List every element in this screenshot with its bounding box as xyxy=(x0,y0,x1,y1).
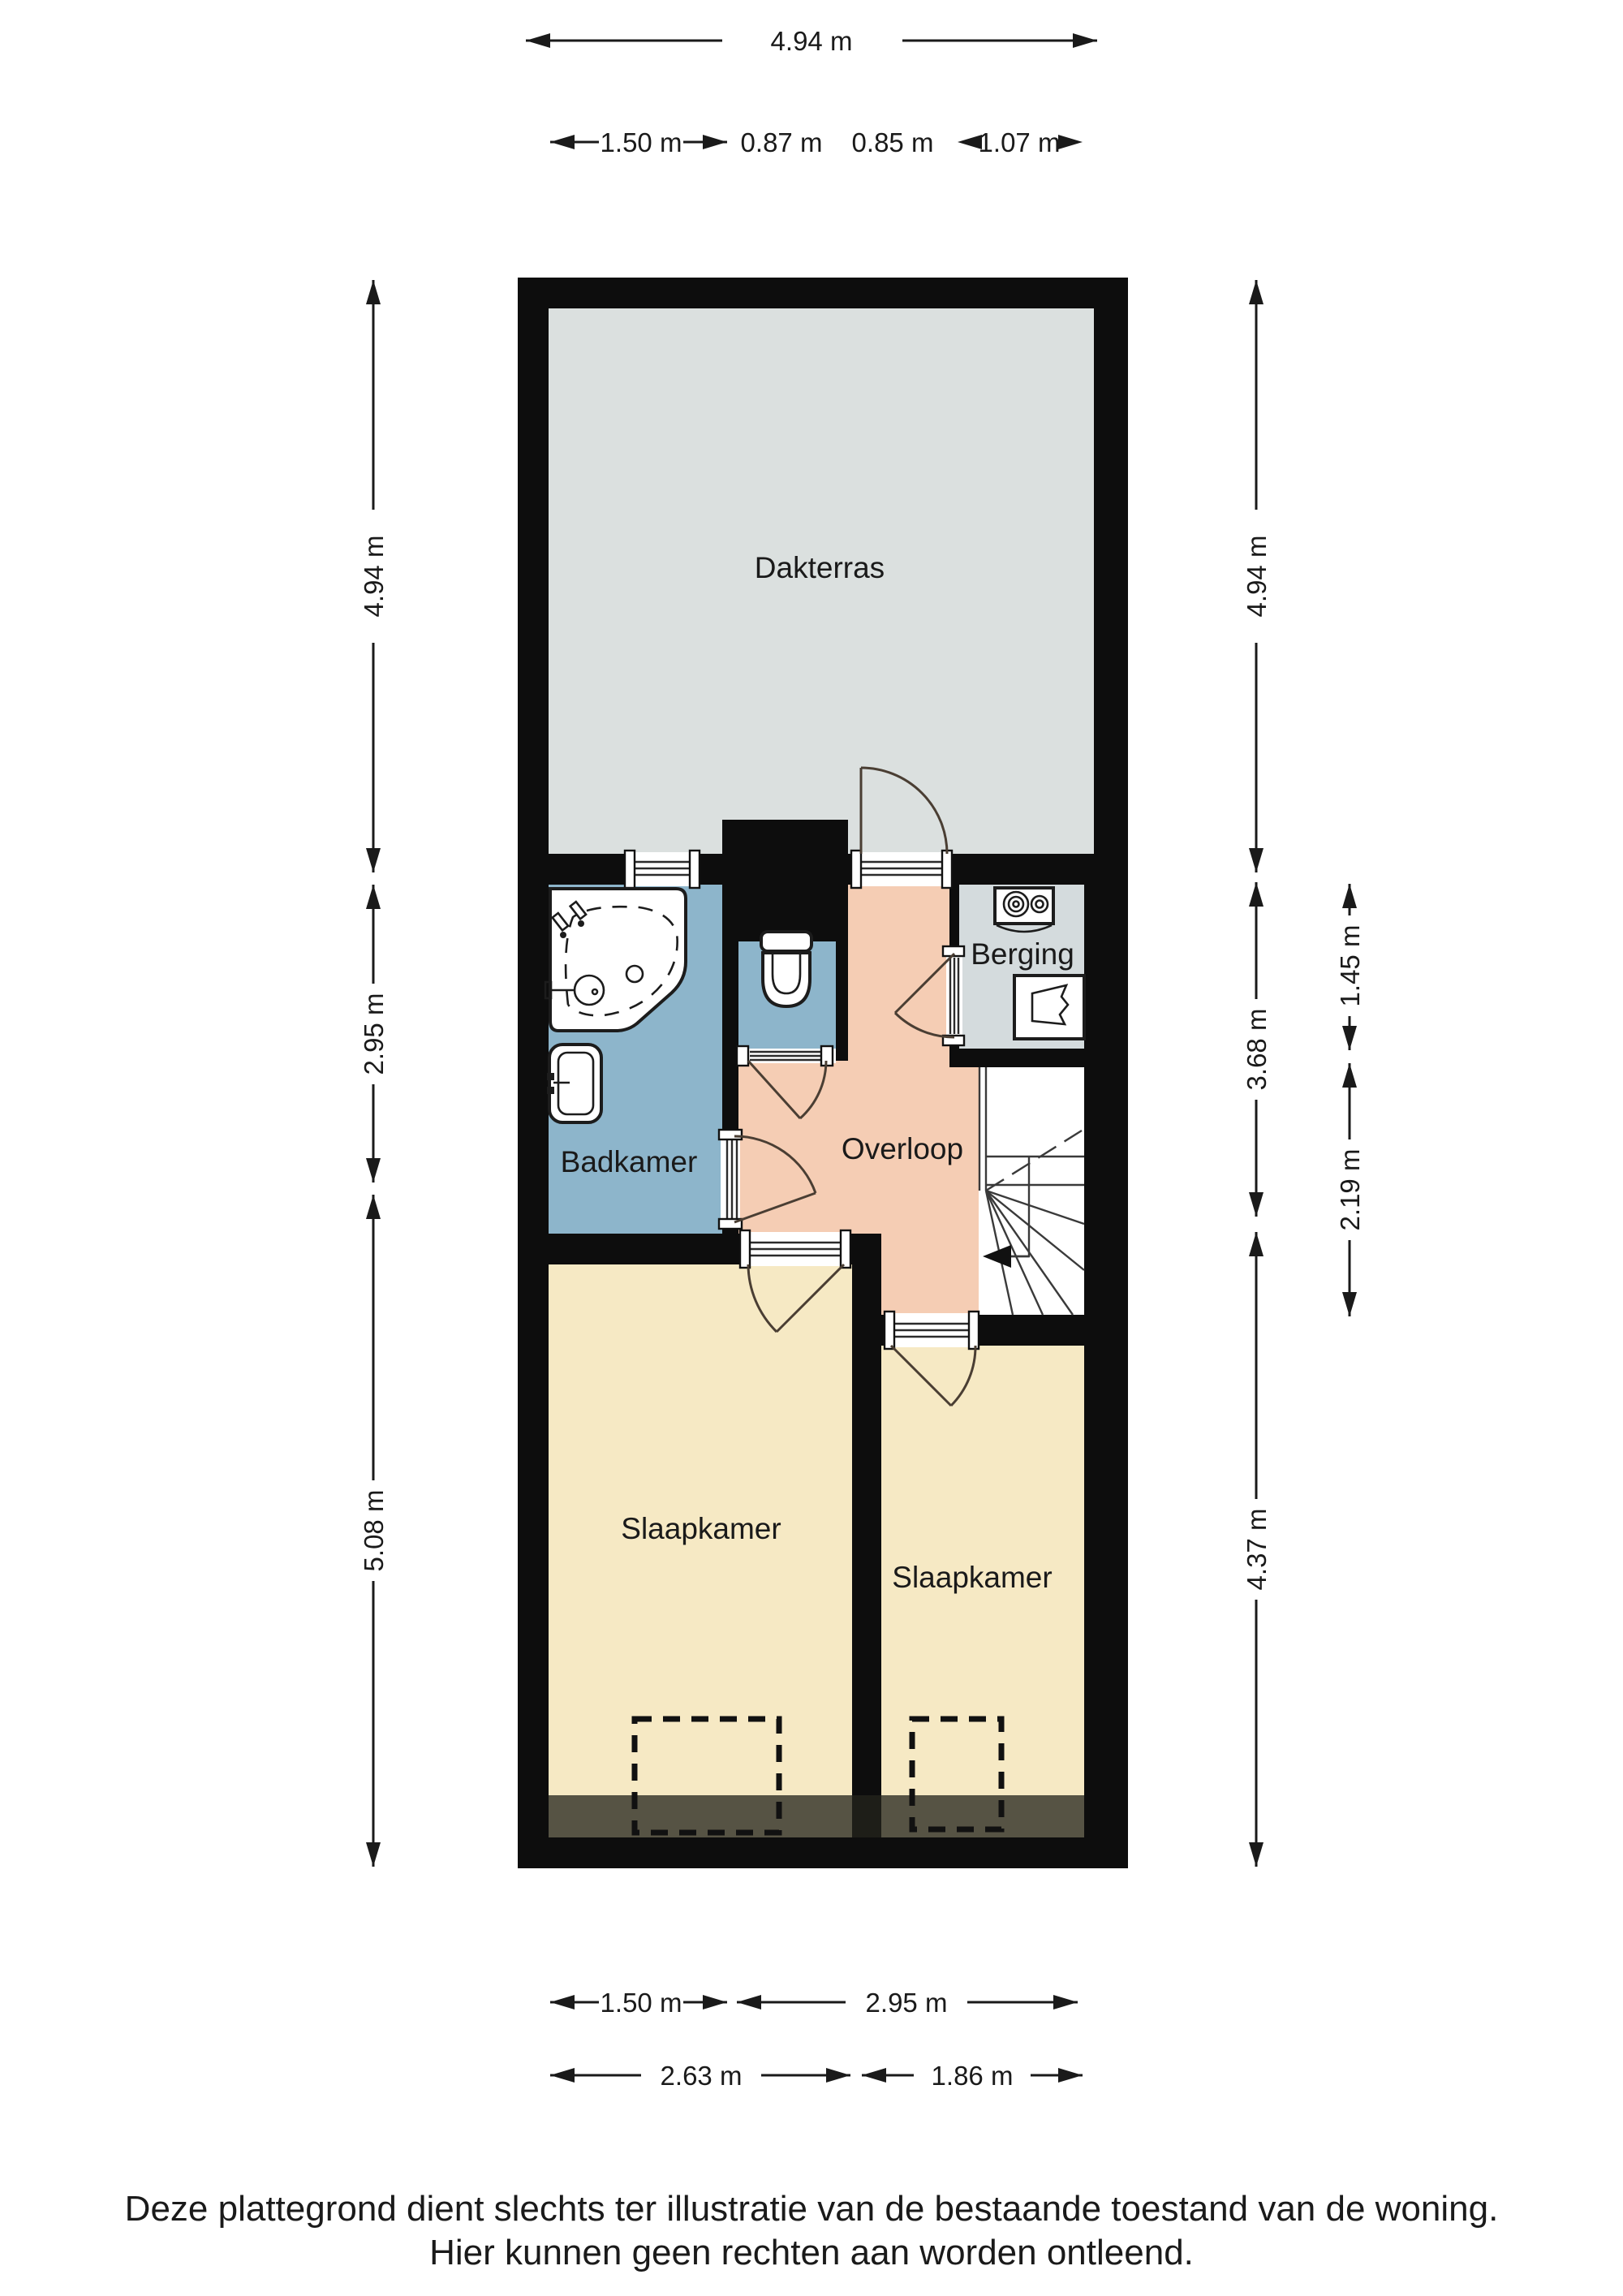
window-badkamer xyxy=(625,851,700,888)
room-label-berging: Berging xyxy=(971,937,1074,971)
room-label-overloop: Overloop xyxy=(842,1132,963,1165)
toilet-icon xyxy=(761,932,811,1006)
dim-label: 5.08 m xyxy=(359,1490,389,1572)
terrace-door-opening xyxy=(851,851,952,888)
dim-label: 2.19 m xyxy=(1335,1149,1365,1231)
wall-wc-right xyxy=(836,941,848,1061)
dim-label: 2.95 m xyxy=(866,1988,948,2018)
badkamer-door-opening xyxy=(719,1130,742,1229)
footer-line-2: Hier kunnen geen rechten aan worden ontl… xyxy=(429,2233,1194,2272)
dim-right-inner-column: 4.94 m 3.68 m 4.37 m xyxy=(1242,280,1272,1867)
dim-label: 4.37 m xyxy=(1242,1509,1272,1591)
room-slaapkamer-left-floor xyxy=(549,1264,852,1837)
dim-label: 0.85 m xyxy=(852,127,934,157)
wall-right-inner xyxy=(1084,854,1096,1837)
dim-label: 1.45 m xyxy=(1335,925,1365,1007)
floorplan-canvas: Dakterras Badkamer Overloop Berging Slaa… xyxy=(0,0,1623,2296)
footer-disclaimer: Deze plattegrond dient slechts ter illus… xyxy=(125,2189,1499,2272)
dim-top-total: 4.94 m xyxy=(526,26,1097,56)
dim-label: 4.94 m xyxy=(359,536,389,618)
footer-line-1: Deze plattegrond dient slechts ter illus… xyxy=(125,2189,1499,2229)
wall-bottom xyxy=(518,1837,1128,1868)
boiler-icon xyxy=(1014,976,1084,1039)
sink-icon xyxy=(547,1045,601,1122)
dim-left-column: 4.94 m 2.95 m 5.08 m xyxy=(359,280,389,1867)
floorplan-page: Dakterras Badkamer Overloop Berging Slaa… xyxy=(0,0,1623,2296)
room-label-dakterras: Dakterras xyxy=(755,551,885,584)
dim-label: 4.94 m xyxy=(771,26,853,56)
slaapkamer-left-door-opening xyxy=(740,1230,850,1268)
wall-right xyxy=(1094,278,1128,1868)
room-label-badkamer: Badkamer xyxy=(561,1145,698,1178)
room-label-slaapkamer-right: Slaapkamer xyxy=(892,1561,1052,1594)
dim-label: 4.94 m xyxy=(1242,536,1272,618)
dim-label: 1.07 m xyxy=(979,127,1061,157)
dim-label: 1.86 m xyxy=(932,2061,1014,2091)
wc-door-opening xyxy=(737,1046,836,1066)
dim-label: 2.95 m xyxy=(359,993,389,1075)
wall-top xyxy=(518,278,1128,308)
floor-areas xyxy=(549,308,1094,1837)
wall-shaft xyxy=(722,820,848,941)
dim-label: 1.50 m xyxy=(601,127,682,157)
washing-machine-icon xyxy=(995,888,1053,932)
slaapkamer-right-door-opening xyxy=(885,1312,979,1349)
wall-berging-bottom xyxy=(949,1049,1128,1067)
dim-bottom-row2: 2.63 m 1.86 m xyxy=(550,2061,1083,2091)
dim-label: 2.63 m xyxy=(661,2061,743,2091)
dim-top-segments: 1.50 m 0.87 m 0.85 m 1.07 m xyxy=(550,127,1083,157)
dim-label: 0.87 m xyxy=(741,127,823,157)
dim-bottom-row1: 1.50 m 2.95 m xyxy=(550,1988,1078,2018)
dim-label: 1.50 m xyxy=(601,1988,682,2018)
staircase-floor xyxy=(979,1067,1084,1315)
wall-bedroom-divider xyxy=(852,1234,881,1837)
dim-label: 3.68 m xyxy=(1242,1009,1272,1091)
dim-right-outer-column: 1.45 m 2.19 m xyxy=(1335,884,1365,1316)
room-label-slaapkamer-left: Slaapkamer xyxy=(621,1512,781,1545)
wall-left xyxy=(518,278,549,1868)
